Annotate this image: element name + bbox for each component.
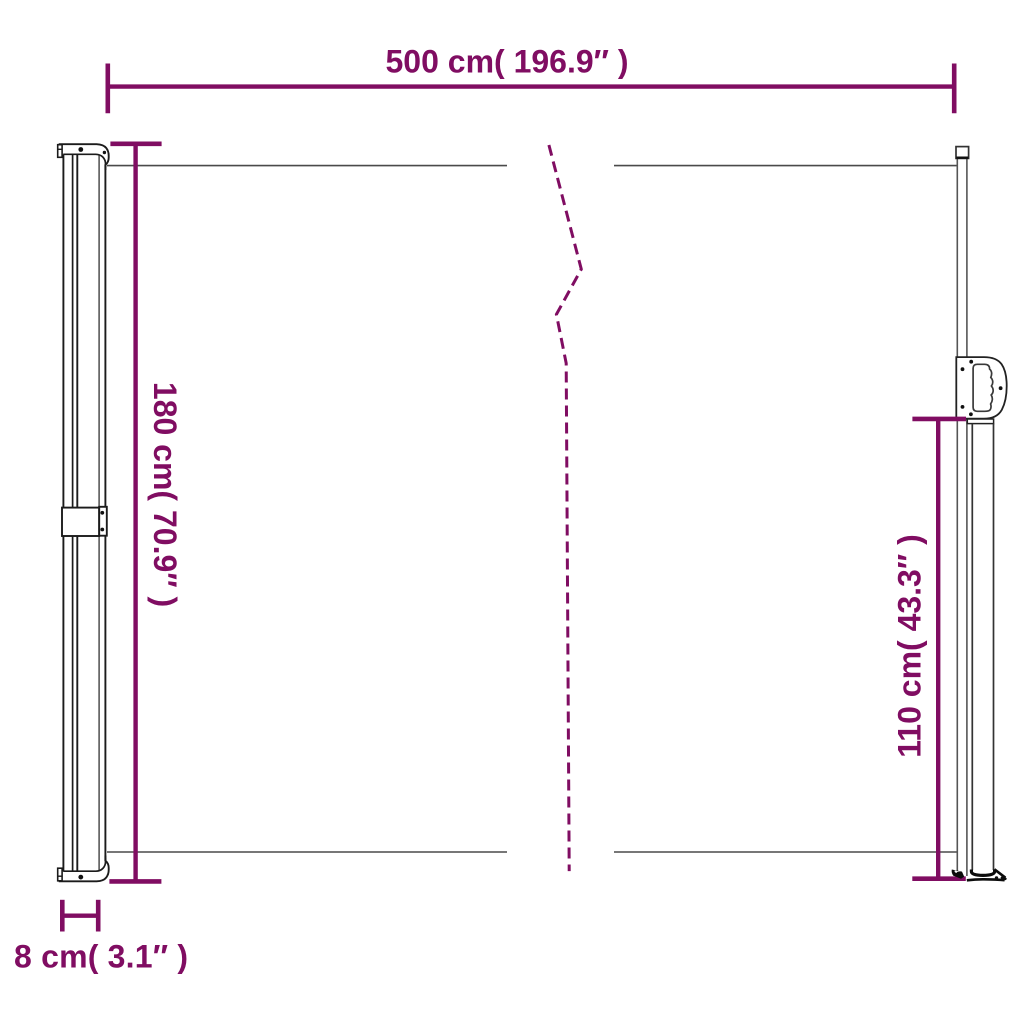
svg-text:180 cm( 70.9″ ): 180 cm( 70.9″ ) — [147, 382, 183, 607]
svg-text:110 cm( 43.3″ ): 110 cm( 43.3″ ) — [892, 534, 928, 757]
svg-text:8 cm( 3.1″ ): 8 cm( 3.1″ ) — [14, 939, 188, 975]
svg-text:500 cm( 196.9″ ): 500 cm( 196.9″ ) — [385, 44, 628, 80]
